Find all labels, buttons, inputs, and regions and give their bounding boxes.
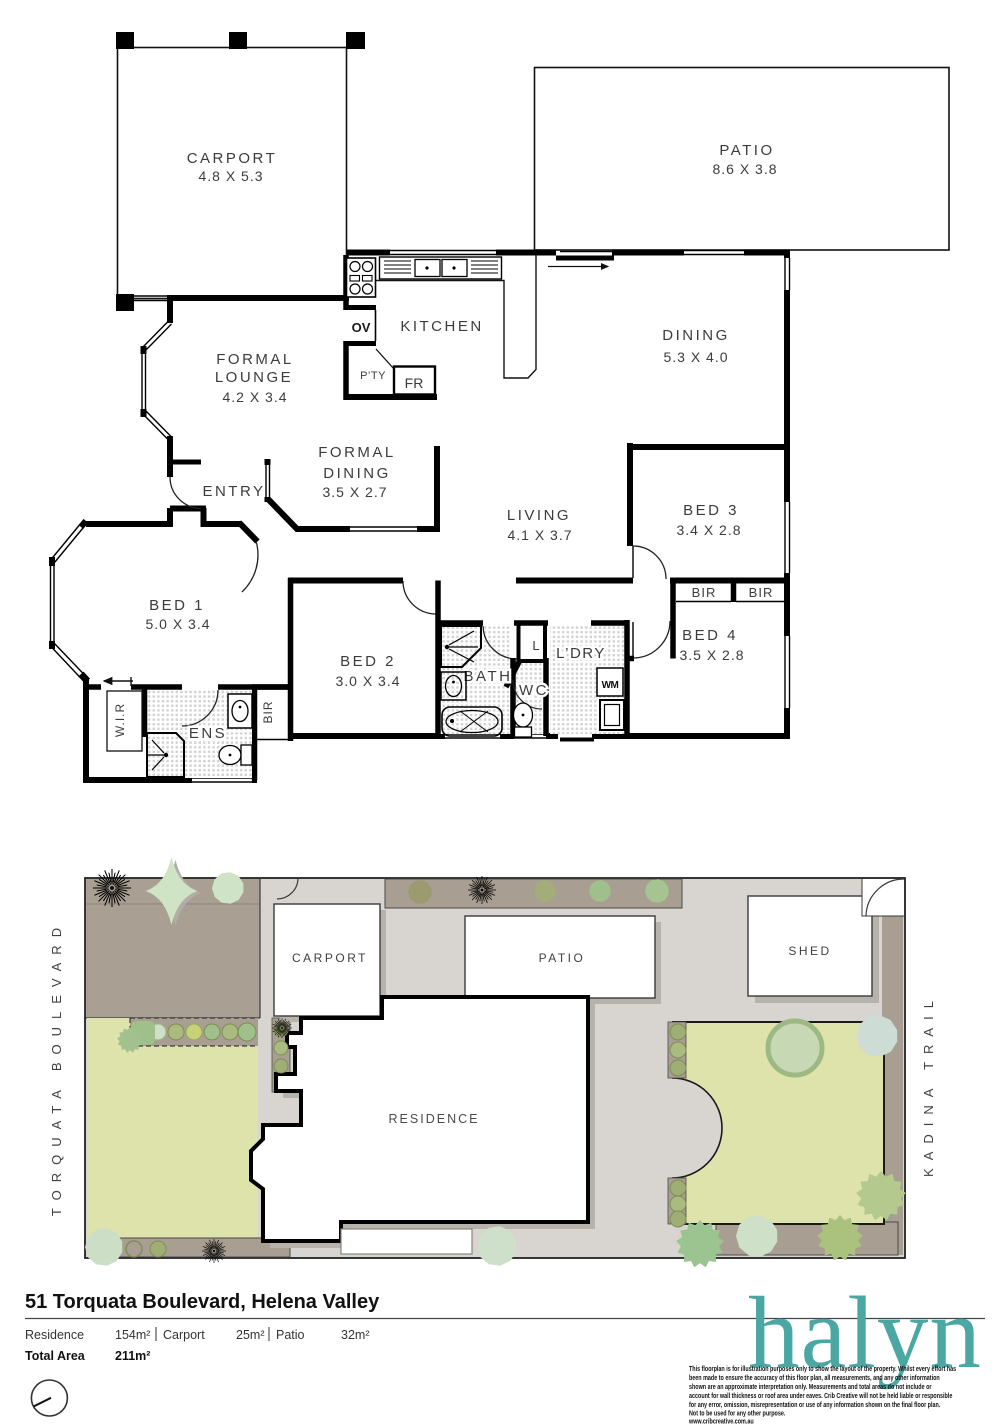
- svg-text:KADINA TRAIL: KADINA TRAIL: [921, 993, 936, 1177]
- svg-text:DINING: DINING: [323, 465, 391, 482]
- svg-text:8.6 X 3.8: 8.6 X 3.8: [712, 161, 777, 177]
- svg-text:4.1 X 3.7: 4.1 X 3.7: [507, 527, 572, 543]
- svg-text:BIR: BIR: [692, 585, 717, 600]
- svg-text:211m²: 211m²: [115, 1349, 150, 1363]
- svg-text:FORMAL: FORMAL: [318, 444, 396, 461]
- svg-text:TORQUATA BOULEVARD: TORQUATA BOULEVARD: [49, 920, 64, 1216]
- svg-text:BED 3: BED 3: [683, 502, 739, 519]
- svg-text:3.5 X 2.7: 3.5 X 2.7: [322, 484, 387, 500]
- svg-text:Residence: Residence: [25, 1328, 84, 1342]
- svg-text:Not to be used for any other p: Not to be used for any other purpose.: [689, 1410, 786, 1418]
- svg-text:CARPORT: CARPORT: [292, 951, 368, 965]
- svg-text:WM: WM: [602, 680, 619, 691]
- svg-text:W.I.R: W.I.R: [113, 703, 127, 737]
- svg-text:32m²: 32m²: [341, 1328, 369, 1342]
- svg-text:4.2 X 3.4: 4.2 X 3.4: [222, 389, 287, 405]
- svg-text:BATH: BATH: [464, 668, 513, 685]
- svg-text:BIR: BIR: [261, 700, 275, 723]
- svg-text:account for wall thickness or: account for wall thickness or roof area …: [689, 1392, 953, 1400]
- svg-text:Carport: Carport: [163, 1328, 205, 1342]
- svg-text:ENS: ENS: [189, 725, 227, 742]
- svg-text:FR: FR: [405, 375, 424, 391]
- svg-text:This floorplan is for illustra: This floorplan is for illustration purpo…: [689, 1365, 957, 1373]
- svg-text:5.0 X 3.4: 5.0 X 3.4: [145, 616, 210, 632]
- svg-text:ENTRY: ENTRY: [202, 483, 265, 500]
- svg-text:25m²: 25m²: [236, 1328, 264, 1342]
- svg-text:L’DRY: L’DRY: [556, 645, 606, 662]
- svg-text:SHED: SHED: [788, 944, 831, 958]
- svg-text:5.3 X 4.0: 5.3 X 4.0: [663, 349, 728, 365]
- svg-text:LOUNGE: LOUNGE: [215, 369, 293, 386]
- svg-text:WC: WC: [519, 682, 549, 699]
- svg-text:OV: OV: [352, 320, 371, 335]
- svg-text:51 Torquata Boulevard, Helena: 51 Torquata Boulevard, Helena Valley: [25, 1291, 380, 1313]
- svg-text:RESIDENCE: RESIDENCE: [389, 1112, 480, 1126]
- svg-text:BED 4: BED 4: [682, 627, 738, 644]
- svg-text:DINING: DINING: [662, 327, 730, 344]
- svg-text:FORMAL: FORMAL: [216, 351, 294, 368]
- svg-text:4.8 X 5.3: 4.8 X 5.3: [198, 168, 263, 184]
- svg-text:PATIO: PATIO: [719, 142, 774, 159]
- svg-text:www.cribcreative.com.au: www.cribcreative.com.au: [688, 1418, 754, 1426]
- svg-text:BIR: BIR: [749, 585, 774, 600]
- svg-text:3.4 X 2.8: 3.4 X 2.8: [676, 522, 741, 538]
- svg-text:P’TY: P’TY: [360, 370, 386, 382]
- svg-text:shown are an approximate inter: shown are an approximate interpretation …: [689, 1383, 932, 1391]
- svg-text:been made to ensure the accura: been made to ensure the accuracy of this…: [689, 1374, 940, 1382]
- svg-text:KITCHEN: KITCHEN: [400, 318, 483, 335]
- svg-text:LIVING: LIVING: [507, 507, 571, 524]
- svg-text:3.5 X 2.8: 3.5 X 2.8: [679, 647, 744, 663]
- svg-text:BED 2: BED 2: [340, 653, 396, 670]
- svg-text:BED 1: BED 1: [149, 597, 205, 614]
- svg-text:3.0 X 3.4: 3.0 X 3.4: [335, 673, 400, 689]
- svg-text:Total Area: Total Area: [25, 1349, 86, 1363]
- svg-text:PATIO: PATIO: [539, 951, 586, 965]
- svg-text:154m²: 154m²: [115, 1328, 150, 1342]
- svg-text:L: L: [532, 638, 539, 653]
- svg-text:Patio: Patio: [276, 1328, 305, 1342]
- svg-text:for any error, omission, misre: for any error, omission, misrepresentati…: [689, 1401, 941, 1409]
- svg-text:CARPORT: CARPORT: [187, 150, 278, 167]
